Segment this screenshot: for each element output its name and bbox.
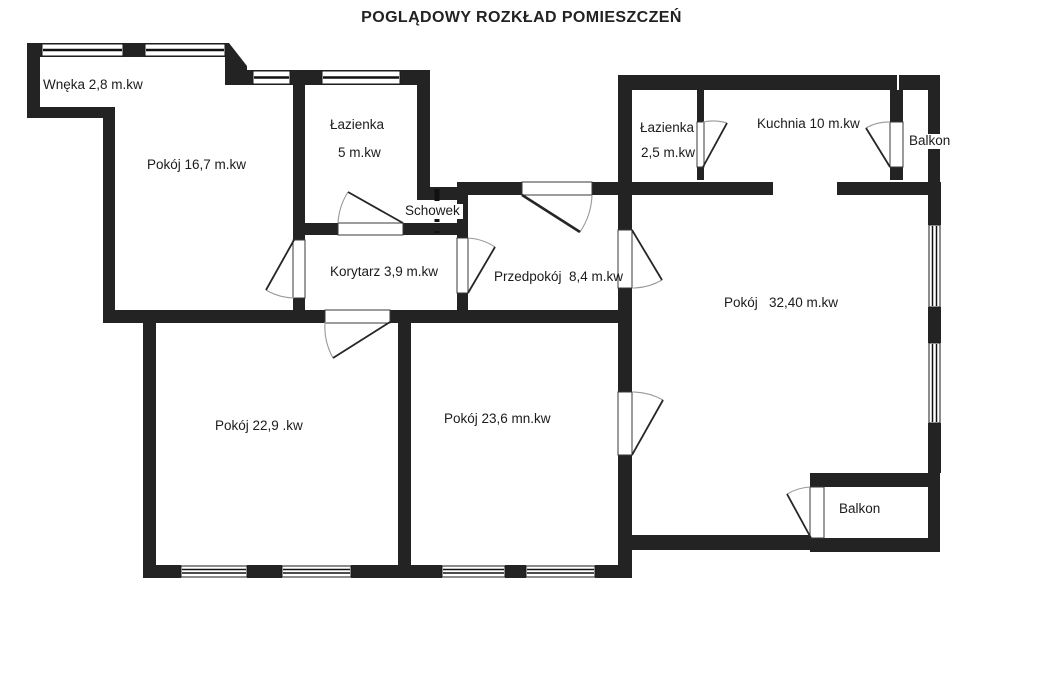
room-label-lazienka5-name: Łazienka [330,118,384,133]
room-label-pokoj-32-40: Pokój 32,40 m.kw [724,296,838,311]
floor-plan: POGLĄDOWY ROZKŁAD POMIESZCZEŃ Wnęka 2,8 … [0,0,1043,687]
room-label-schowek: Schowek [402,204,463,219]
plan-title: POGLĄDOWY ROZKŁAD POMIESZCZEŃ [0,9,1043,27]
room-label-balkon-dolny: Balkon [839,502,880,517]
room-label-przedpokoj: Przedpokój 8,4 m.kw [494,270,623,285]
kitchen-passage-opening [773,182,837,195]
room-label-pokoj-16-7: Pokój 16,7 m.kw [147,158,246,173]
room-label-balkon-gorny: Balkon [906,134,953,149]
room-label-pokoj-22-9: Pokój 22,9 .kw [215,419,303,434]
room-label-kuchnia: Kuchnia 10 m.kw [757,117,860,132]
floor-plan-drawing [0,0,1043,687]
room-label-wneka: Wnęka 2,8 m.kw [43,78,143,93]
room-label-korytarz: Korytarz 3,9 m.kw [330,265,438,280]
room-label-lazienka25-name: Łazienka [640,121,694,136]
room-label-lazienka5-area: 5 m.kw [338,146,381,161]
room-label-lazienka25-area: 2,5 m.kw [641,146,695,161]
room-label-pokoj-23-6: Pokój 23,6 mn.kw [444,412,551,427]
